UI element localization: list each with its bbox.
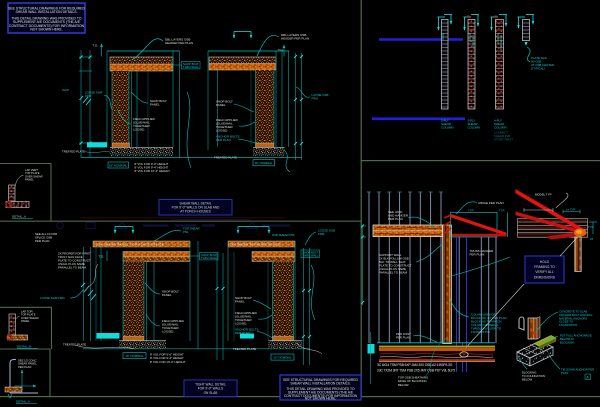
svg-text:FRM: FRM <box>312 97 319 101</box>
svg-text:ON SLAB: ON SLAB <box>204 391 218 395</box>
svg-text:PANEL: PANEL <box>235 300 245 304</box>
svg-text:2X: 2X <box>590 237 594 241</box>
svg-text:PANEL: PANEL <box>216 103 226 107</box>
svg-text:16″ NOMINAL: 16″ NOMINAL <box>109 163 128 167</box>
svg-text:THRU WALL: THRU WALL <box>183 65 200 69</box>
svg-text:PANEL: PANEL <box>162 293 172 297</box>
svg-text:RIDGE PER PLAN: RIDGE PER PLAN <box>479 201 504 205</box>
svg-text:COLUMN: COLUMN <box>441 126 454 130</box>
svg-text:COLUMN: COLUMN <box>494 126 507 130</box>
svg-text:HOLD: HOLD <box>540 260 550 264</box>
svg-text:HEADER PER PLAN: HEADER PER PLAN <box>281 37 309 41</box>
svg-text:PANEL: PANEL <box>21 319 30 323</box>
svg-text:LOOSE): LOOSE) <box>162 330 173 334</box>
svg-text:PER PLAN: PER PLAN <box>470 253 485 257</box>
svg-text:NOT SHOWN HERE.: NOT SHOWN HERE. <box>30 27 62 31</box>
svg-text:TREATED PLATE: TREATED PLATE <box>62 150 85 154</box>
svg-text:VERIFY ALL: VERIFY ALL <box>535 270 554 274</box>
svg-text:TYP: TYP <box>468 209 474 213</box>
svg-text:LOOSE): LOOSE) <box>216 129 227 133</box>
svg-text:MODEL TYP: MODEL TYP <box>535 193 552 197</box>
svg-text:DETAIL_B: DETAIL_B <box>17 345 31 349</box>
svg-text:16″ NOMINAL: 16″ NOMINAL <box>125 354 144 358</box>
svg-text:DETAIL_A: DETAIL_A <box>12 215 26 219</box>
svg-text:PNL: PNL <box>183 230 189 234</box>
svg-text:T.O.: T.O. <box>93 44 99 48</box>
svg-text:PER PLAN: PER PLAN <box>396 336 410 340</box>
svg-text:DETAIL_A: DETAIL_A <box>16 400 30 404</box>
svg-text:BLOCKING: BLOCKING <box>560 340 574 344</box>
svg-text:PER PLAN: PER PLAN <box>216 138 231 142</box>
svg-text:STORY FIRST: STORY FIRST <box>494 138 513 142</box>
svg-text:FRM: FRM <box>318 232 325 236</box>
svg-text:BELOW: BELOW <box>398 383 409 387</box>
svg-text:PER PLAN: PER PLAN <box>18 365 31 369</box>
svg-text:AT PORCH HOUSES: AT PORCH HOUSES <box>180 210 211 214</box>
svg-text:16″ NOMINAL: 16″ NOMINAL <box>273 356 292 360</box>
svg-text:DIMENSIONS: DIMENSIONS <box>534 275 556 279</box>
svg-text:L= TYP: L= TYP <box>566 208 575 212</box>
svg-text:PLAN: PLAN <box>561 371 568 375</box>
svg-text:(TYPICAL): (TYPICAL) <box>531 67 545 71</box>
svg-text:8′ VOL FOR 10′-4″ HEIGHT: 8′ VOL FOR 10′-4″ HEIGHT <box>135 169 171 173</box>
svg-text:PER PLAN: PER PLAN <box>388 217 403 221</box>
svg-text:NOT SHOWN HERE.: NOT SHOWN HERE. <box>305 396 337 400</box>
svg-text:2dC 7X2M 3NT TSM PSB 2X5 JMT O: 2dC 7X2M 3NT TSM PSB 2X5 JMT OSB PST V3L… <box>377 368 455 372</box>
svg-text:LOOSE): LOOSE) <box>235 322 246 326</box>
svg-text:2ND SHEAR PNL: 2ND SHEAR PNL <box>272 233 295 237</box>
svg-text:LOOSE): LOOSE) <box>133 128 144 132</box>
svg-text:FRAMING TO: FRAMING TO <box>534 265 555 269</box>
svg-text:THRU WALL: THRU WALL <box>303 254 320 258</box>
svg-text:PER PLAN: PER PLAN <box>235 331 250 335</box>
svg-text:PER PLAN: PER PLAN <box>35 239 49 243</box>
svg-text:TREATED PLATE: TREATED PLATE <box>214 156 237 160</box>
svg-text:2X4 SHEAR TOP PLATE SPLICE: 2X4 SHEAR TOP PLATE SPLICE <box>230 243 280 247</box>
svg-text:PARALLEL TO BEAM: PARALLEL TO BEAM <box>58 266 87 270</box>
svg-text:TYP: TYP <box>588 225 594 229</box>
svg-text:TREATED PLATE: TREATED PLATE <box>233 347 256 351</box>
svg-text:8′ VOL FOR 10′-4″ HEIGHT: 8′ VOL FOR 10′-4″ HEIGHT <box>150 360 186 364</box>
svg-text:T.O.: T.O. <box>99 255 105 259</box>
svg-text:PANEL: PANEL <box>25 178 34 182</box>
svg-text:T.O.: T.O. <box>278 48 284 52</box>
svg-text:SHIP: SHIP <box>62 88 69 92</box>
svg-text:THRU WALL: THRU WALL <box>201 256 218 260</box>
svg-text:TREATED PLATE: TREATED PLATE <box>63 343 86 347</box>
svg-text:LOOSE SHIP FRM: LOOSE SHIP FRM <box>40 296 65 300</box>
svg-text:SHEAR WALL INSTALLATION DETAIL: SHEAR WALL INSTALLATION DETAILS. <box>290 381 350 385</box>
svg-text:SHEAR WALL INSTALLATION DETAIL: SHEAR WALL INSTALLATION DETAILS. <box>16 10 78 14</box>
svg-text:PARALLEL TO BEAM: PARALLEL TO BEAM <box>379 271 408 275</box>
svg-text:HEADER PER PLAN: HEADER PER PLAN <box>165 41 193 45</box>
svg-text:COLUMN: COLUMN <box>468 126 481 130</box>
svg-text:BELOW: BELOW <box>522 377 532 381</box>
svg-text:TYP: TYP <box>499 209 505 213</box>
svg-text:16″ NOMINAL: 16″ NOMINAL <box>255 161 274 165</box>
svg-text:FRM: FRM <box>85 94 92 98</box>
svg-text:PANEL: PANEL <box>150 103 160 107</box>
svg-text:3C 6X14 TSM PSB 6XP JAM 3X0 OS: 3C 6X14 TSM PSB 6XP JAM 3X0 OSB A2 6 BSP… <box>377 363 453 367</box>
svg-text:2X4 SHEAR PANEL TOP PLATE SPLI: 2X4 SHEAR PANEL TOP PLATE SPLICE <box>96 243 164 247</box>
svg-text:FOUNDATION: FOUNDATION <box>559 323 577 327</box>
